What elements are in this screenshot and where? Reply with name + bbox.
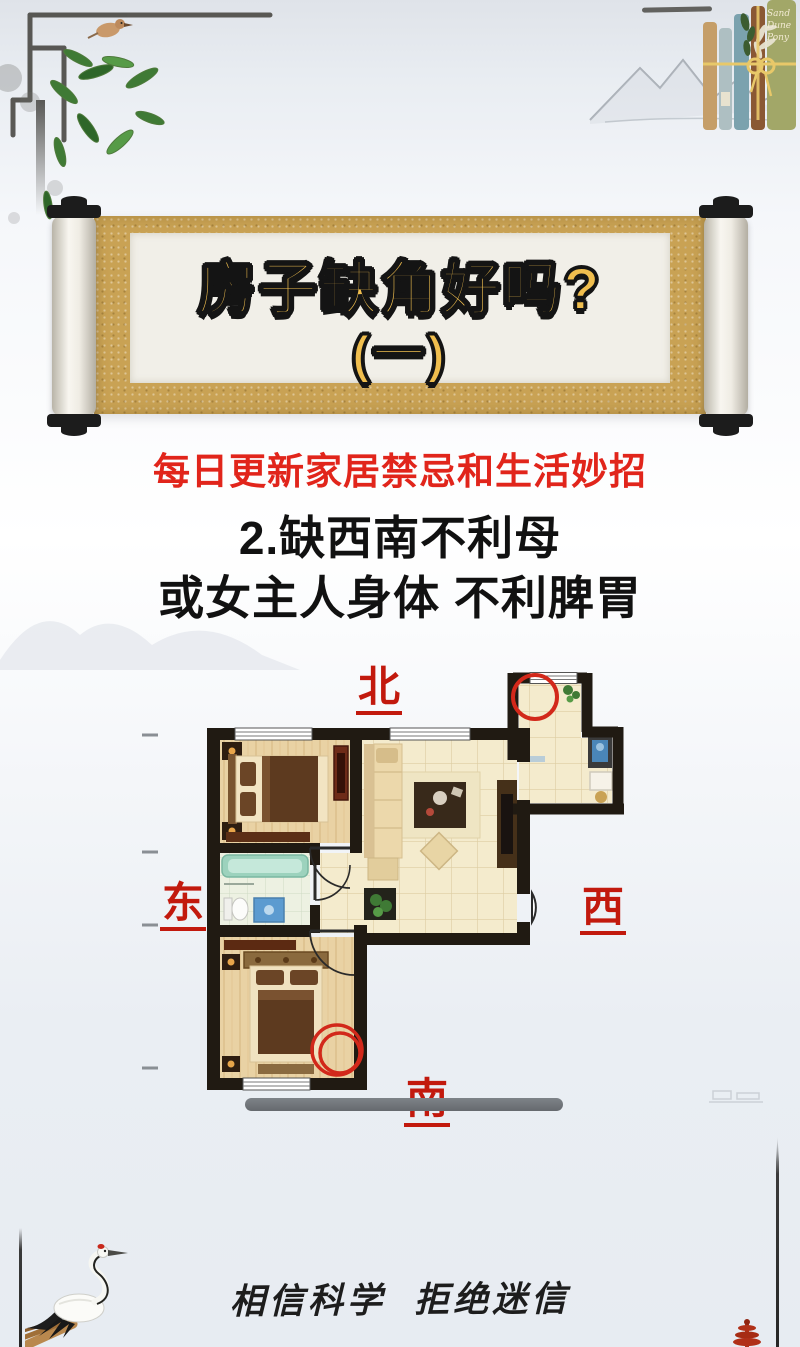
direction-label-north: 北 — [356, 666, 402, 715]
ink-dash-top-right — [642, 6, 712, 12]
hanging-cord-left — [19, 1228, 22, 1347]
red-ornament-decor — [732, 1318, 762, 1347]
direction-label-east: 东 — [160, 882, 206, 931]
heading-line1: 2.缺西南不利母 — [40, 502, 760, 568]
scroll-finial — [699, 414, 753, 436]
crane-decor — [25, 1240, 165, 1347]
dimension-ticks — [142, 735, 158, 1068]
plan-ground-shadow — [245, 1098, 563, 1111]
hallway-floor — [320, 853, 362, 933]
banner-title-line2: (一) — [100, 312, 700, 387]
scroll-finial — [47, 414, 101, 436]
heading-line2: 或女主人身体 不利脾胃 — [40, 562, 760, 628]
bird-icon — [88, 19, 133, 39]
direction-label-west: 西 — [580, 886, 626, 935]
book-spine-text: Sand Dune Pony — [767, 8, 799, 44]
scroll-finial — [699, 196, 753, 218]
scroll-roller-right — [704, 216, 748, 416]
crane-beak — [108, 1250, 128, 1256]
scroll-roller-left — [52, 216, 96, 416]
crane-red-crown — [98, 1244, 105, 1249]
footer-slogan: 相信科学 拒绝迷信 — [100, 1269, 700, 1325]
scroll-finial — [47, 196, 101, 218]
infographic-page: Sand Dune Pony 房子缺角好吗? (一) 每日更新家居禁忌和生活妙招… — [0, 0, 800, 1347]
hanging-cord-right — [776, 1136, 779, 1347]
bench-sketch — [705, 1086, 767, 1106]
subtitle-text: 每日更新家居禁忌和生活妙招 — [60, 441, 740, 495]
